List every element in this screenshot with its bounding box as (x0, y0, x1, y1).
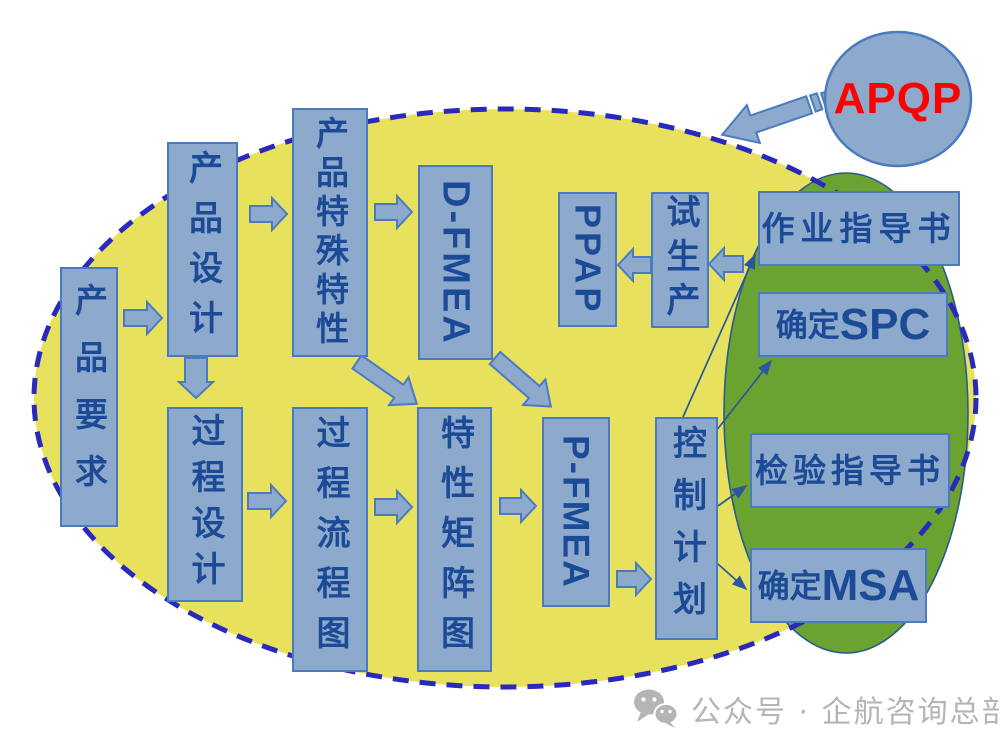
node-product-special-characteristics: 产品特殊特性 (292, 108, 368, 357)
node-label: 检验指导书 (755, 454, 945, 487)
node-label-en: MSA (822, 564, 920, 608)
node-label: 特性矩阵图 (438, 415, 472, 665)
node-process-design: 过程设计 (167, 407, 243, 602)
node-label: 产品特殊特性 (314, 116, 347, 350)
node-d-fmea: D-FMEA (418, 165, 493, 360)
node-p-fmea: P-FMEA (542, 417, 610, 607)
node-determine-msa: 确定MSA (750, 548, 927, 623)
node-inspection-instructions: 检验指导书 (750, 433, 950, 508)
node-determine-spc: 确定SPC (758, 292, 948, 357)
node-product-requirements: 产品要求 (60, 267, 118, 527)
node-work-instructions: 作业指导书 (758, 191, 960, 266)
node-label: D-FMEA (437, 180, 475, 346)
node-ppap: PPAP (558, 192, 617, 327)
node-control-plan: 控制计划 (655, 417, 718, 640)
node-label-en: SPC (840, 303, 930, 347)
node-process-flow-diagram: 过程流程图 (292, 407, 368, 672)
node-label: 控制计划 (670, 425, 704, 633)
node-product-design: 产品设计 (167, 142, 238, 357)
watermark: 公众号 · 企航咨询总部 (633, 686, 1000, 732)
node-label: 产品设计 (186, 150, 220, 350)
node-label: PPAP (570, 204, 606, 315)
node-characteristics-matrix-diagram: 特性矩阵图 (417, 407, 492, 672)
node-label: 过程设计 (188, 413, 222, 597)
apqp-badge-label: APQP (828, 74, 968, 124)
node-label: P-FMEA (558, 435, 595, 589)
node-label-cn: 确定 (776, 309, 840, 341)
apqp-pointer-body (716, 86, 816, 154)
watermark-text: 公众号 · 企航咨询总部 (691, 687, 1000, 731)
node-label: 试生产 (663, 194, 697, 326)
node-label-cn: 确定 (758, 570, 822, 602)
arrow-apqp-pointer (716, 79, 835, 153)
node-label: 作业指导书 (762, 212, 957, 245)
apqp-pointer-stripe (810, 93, 822, 111)
node-label: 产品要求 (73, 283, 106, 511)
node-trial-production: 试生产 (651, 192, 709, 328)
node-label: 过程流程图 (313, 415, 347, 665)
wechat-icon (633, 689, 681, 729)
apqp-diagram: 产品要求 产品设计 产品特殊特性 D-FMEA PPAP 试生产 作业指导书 确… (0, 0, 1000, 750)
